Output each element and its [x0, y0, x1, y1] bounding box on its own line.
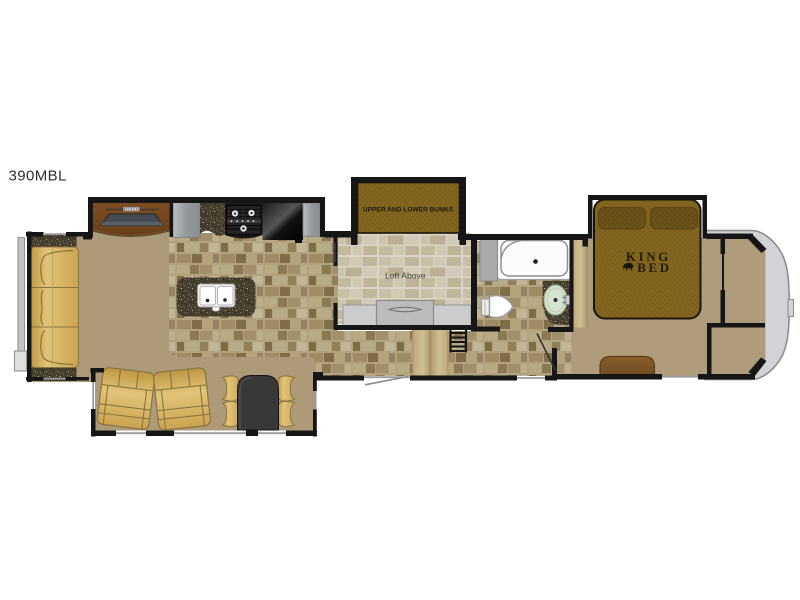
svg-text:390MBL: 390MBL — [9, 168, 67, 185]
svg-text:Loft Above: Loft Above — [385, 271, 426, 281]
svg-text:BED: BED — [637, 261, 671, 275]
svg-text:UPPER AND LOWER BUNKS: UPPER AND LOWER BUNKS — [363, 207, 454, 214]
